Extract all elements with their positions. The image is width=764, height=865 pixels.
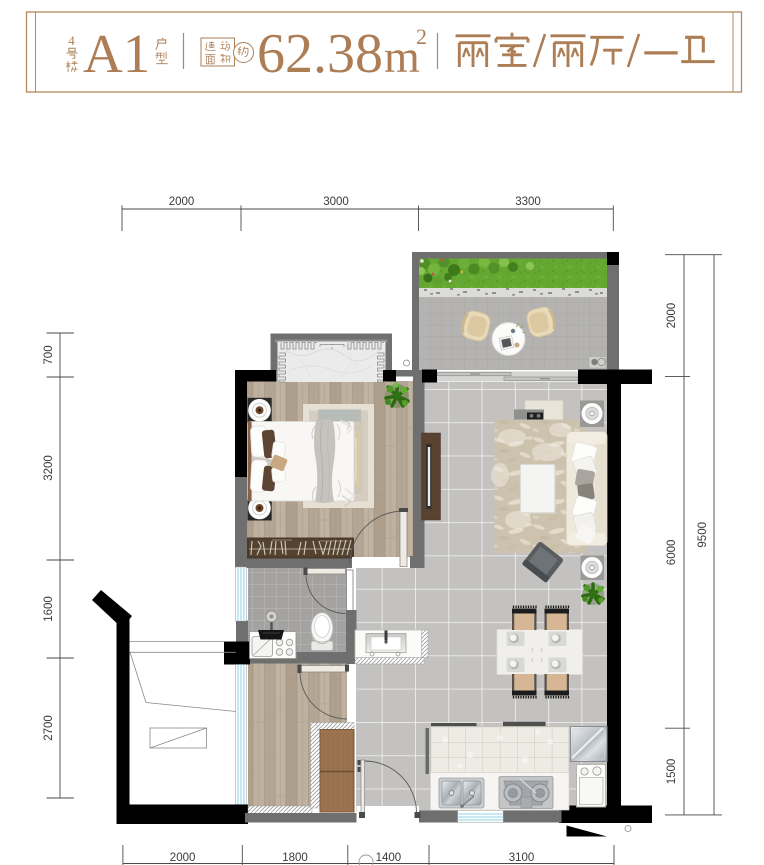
- svg-text:1400: 1400: [376, 852, 402, 864]
- svg-text:4: 4: [68, 33, 75, 48]
- svg-text:2000: 2000: [666, 303, 678, 329]
- svg-text:62.38: 62.38: [257, 23, 383, 85]
- svg-text:700: 700: [43, 345, 55, 364]
- svg-text:2: 2: [416, 24, 427, 49]
- svg-text:A1: A1: [83, 23, 150, 84]
- svg-text:2700: 2700: [43, 715, 55, 741]
- svg-text:3000: 3000: [323, 196, 349, 208]
- svg-text:1600: 1600: [43, 596, 55, 622]
- svg-text:2000: 2000: [169, 196, 195, 208]
- svg-text:1800: 1800: [282, 852, 308, 864]
- svg-text:3100: 3100: [509, 852, 535, 864]
- svg-text:2000: 2000: [170, 852, 196, 864]
- svg-text:1500: 1500: [666, 759, 678, 785]
- svg-text:m: m: [384, 31, 420, 82]
- svg-text:3200: 3200: [43, 455, 55, 481]
- svg-text:6000: 6000: [666, 540, 678, 566]
- svg-text:3300: 3300: [515, 196, 541, 208]
- svg-text:9500: 9500: [697, 522, 709, 548]
